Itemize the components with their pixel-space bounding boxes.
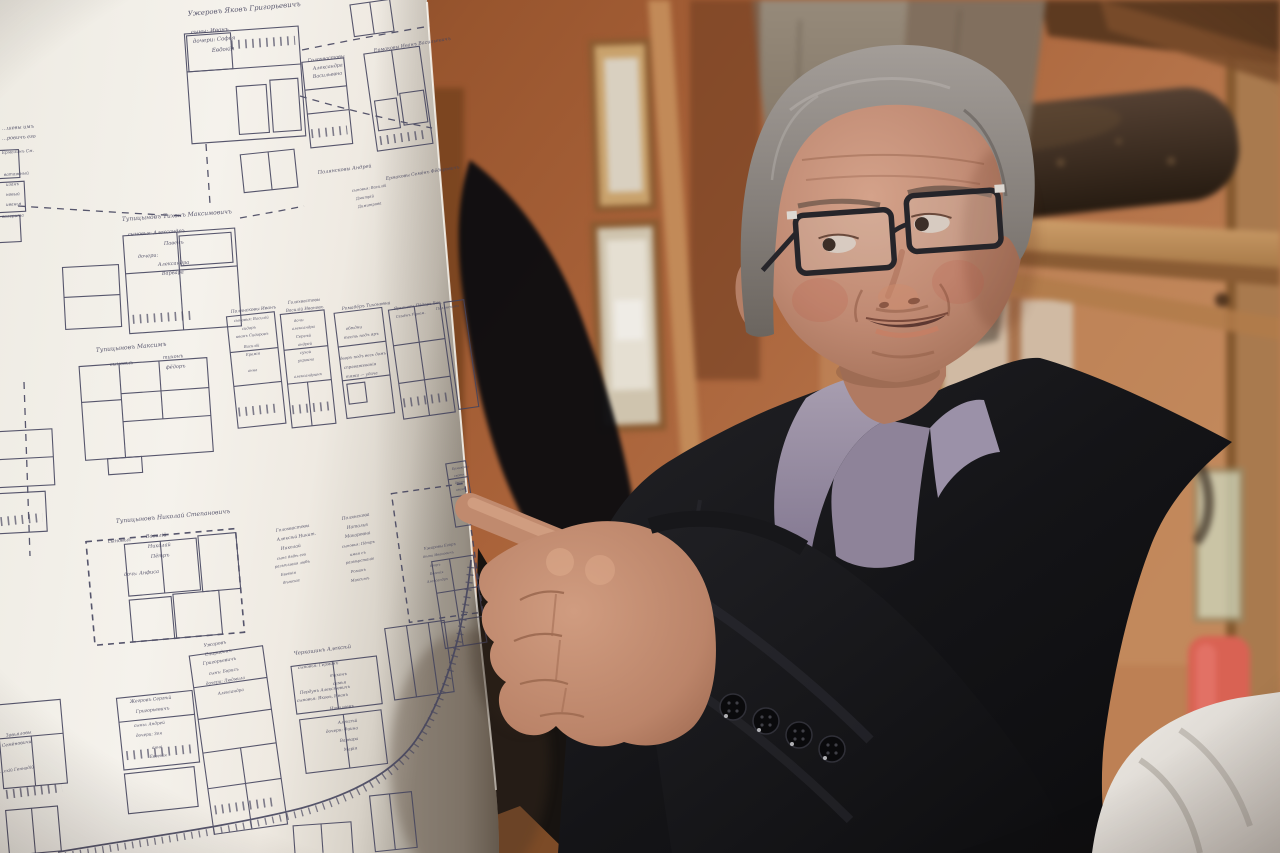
photo-scene: Ужеровъ Яковъ Григорьевичъсыны: Иванъдоч… [0, 0, 1280, 853]
vignette [0, 0, 1280, 853]
photo-svg: Ужеровъ Яковъ Григорьевичъсыны: Иванъдоч… [0, 0, 1280, 853]
